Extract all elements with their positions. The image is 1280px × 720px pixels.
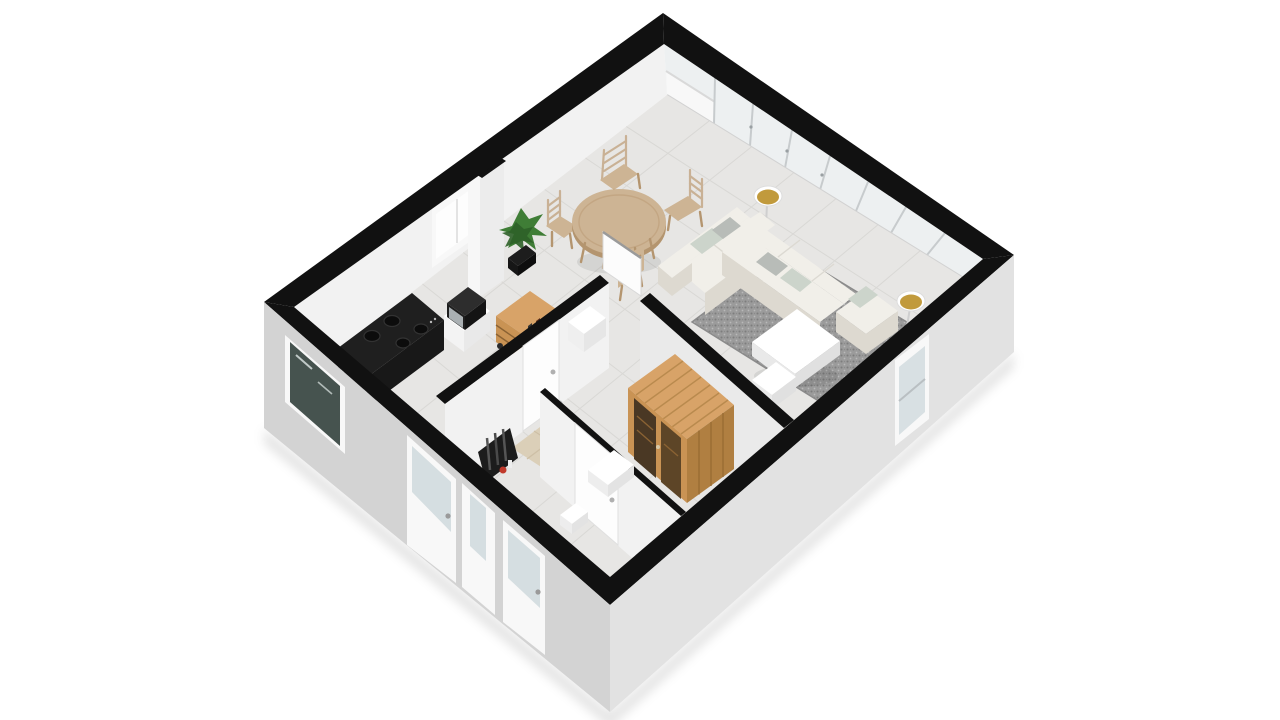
canister (508, 460, 512, 468)
floor-plan-3d-render (0, 0, 1280, 720)
floor-plan-canvas (0, 0, 1280, 720)
fire-extinguisher (500, 467, 507, 474)
